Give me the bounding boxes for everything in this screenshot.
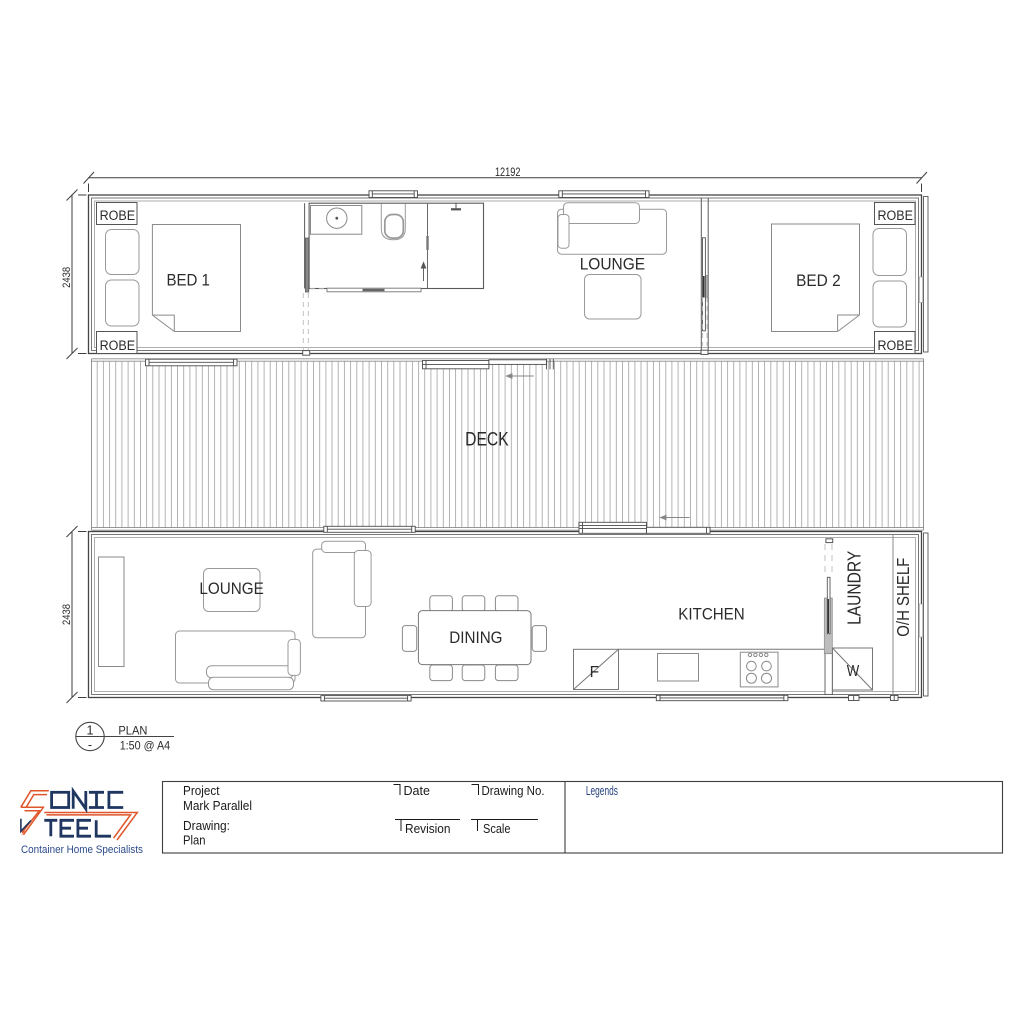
svg-text:ROBE: ROBE xyxy=(877,338,913,353)
svg-text:Container Home Specialists: Container Home Specialists xyxy=(21,844,143,856)
svg-text:Drawing:: Drawing: xyxy=(183,819,230,833)
svg-text:BED 1: BED 1 xyxy=(166,270,210,289)
svg-text:Plan: Plan xyxy=(183,833,206,847)
svg-text:Date: Date xyxy=(404,784,431,798)
svg-text:DINING: DINING xyxy=(449,628,502,647)
svg-text:Mark Parallel: Mark Parallel xyxy=(183,799,252,813)
svg-text:PLAN: PLAN xyxy=(118,723,147,737)
svg-text:LOUNGE: LOUNGE xyxy=(580,255,645,274)
svg-text:DECK: DECK xyxy=(465,430,509,451)
svg-text:2438: 2438 xyxy=(61,267,73,288)
svg-text:ROBE: ROBE xyxy=(100,338,136,353)
svg-text:W: W xyxy=(847,663,860,680)
svg-text:O/H SHELF: O/H SHELF xyxy=(893,558,913,637)
svg-text:Legends: Legends xyxy=(586,784,618,798)
svg-text:LAUNDRY: LAUNDRY xyxy=(844,551,864,625)
svg-text:12192: 12192 xyxy=(495,165,521,179)
svg-text:Drawing No.: Drawing No. xyxy=(482,784,545,798)
svg-text:BED 2: BED 2 xyxy=(796,271,841,290)
svg-text:Scale: Scale xyxy=(483,822,511,836)
svg-text:1:50 @ A4: 1:50 @ A4 xyxy=(120,739,171,753)
svg-text:Project: Project xyxy=(183,784,220,798)
svg-text:ROBE: ROBE xyxy=(100,208,136,223)
svg-text:2438: 2438 xyxy=(61,604,73,625)
svg-text:LOUNGE: LOUNGE xyxy=(199,579,263,598)
svg-text:-: - xyxy=(88,738,92,752)
svg-text:KITCHEN: KITCHEN xyxy=(678,605,744,624)
svg-text:Revision: Revision xyxy=(405,822,451,836)
svg-text:1: 1 xyxy=(87,724,94,738)
svg-text:ROBE: ROBE xyxy=(877,208,913,223)
svg-text:F: F xyxy=(590,664,599,681)
